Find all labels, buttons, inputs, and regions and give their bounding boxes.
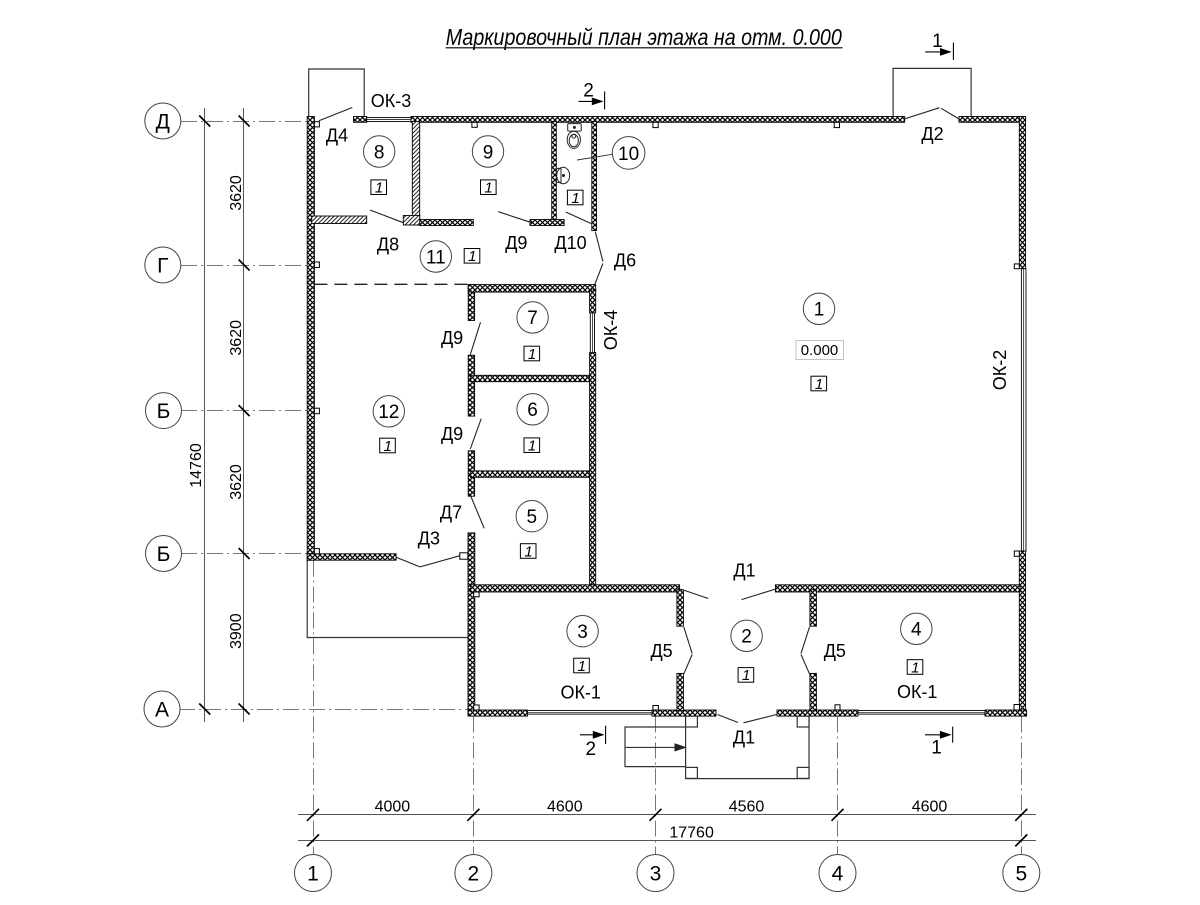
svg-text:Д3: Д3 <box>418 529 440 549</box>
svg-text:3: 3 <box>577 622 588 643</box>
svg-text:ОК-1: ОК-1 <box>560 683 601 703</box>
svg-text:1: 1 <box>931 738 942 759</box>
svg-text:1: 1 <box>932 31 943 52</box>
svg-text:1: 1 <box>815 376 823 393</box>
svg-text:4000: 4000 <box>375 799 411 816</box>
svg-text:ОК-1: ОК-1 <box>897 682 938 702</box>
svg-text:Д10: Д10 <box>554 233 586 253</box>
svg-text:6: 6 <box>527 400 538 421</box>
svg-text:Д9: Д9 <box>441 328 463 348</box>
svg-text:5: 5 <box>1015 863 1027 886</box>
svg-text:1: 1 <box>384 438 392 455</box>
svg-text:1: 1 <box>524 543 532 560</box>
svg-text:А: А <box>155 699 169 722</box>
svg-text:3620: 3620 <box>228 175 245 211</box>
svg-text:3: 3 <box>650 863 662 886</box>
svg-text:Д2: Д2 <box>921 124 943 144</box>
svg-text:Д4: Д4 <box>326 126 348 146</box>
svg-text:2: 2 <box>586 739 597 760</box>
svg-text:Д1: Д1 <box>733 728 755 748</box>
svg-text:12: 12 <box>378 402 399 423</box>
svg-text:Д9: Д9 <box>505 233 527 253</box>
svg-text:Д1: Д1 <box>733 561 755 581</box>
svg-text:1: 1 <box>468 248 476 265</box>
svg-text:11: 11 <box>426 247 446 268</box>
svg-text:Д6: Д6 <box>614 251 636 271</box>
svg-text:ОК-4: ОК-4 <box>601 310 621 351</box>
svg-text:3900: 3900 <box>228 613 245 649</box>
svg-text:7: 7 <box>527 308 538 329</box>
svg-text:5: 5 <box>527 507 538 528</box>
svg-text:14760: 14760 <box>188 443 205 488</box>
svg-text:4: 4 <box>832 863 844 886</box>
svg-text:1: 1 <box>814 300 825 321</box>
svg-text:1: 1 <box>307 863 319 886</box>
svg-text:Д5: Д5 <box>650 641 672 661</box>
svg-text:Д9: Д9 <box>441 424 463 444</box>
svg-text:10: 10 <box>618 144 639 165</box>
svg-text:17760: 17760 <box>669 825 714 842</box>
svg-text:3620: 3620 <box>228 464 245 500</box>
svg-text:8: 8 <box>374 142 385 163</box>
svg-text:Д8: Д8 <box>377 235 399 255</box>
svg-text:Д5: Д5 <box>824 641 846 661</box>
svg-text:3620: 3620 <box>228 320 245 356</box>
svg-text:1: 1 <box>742 667 750 684</box>
svg-text:1: 1 <box>528 346 536 363</box>
svg-text:ОК-2: ОК-2 <box>990 350 1010 391</box>
svg-text:4600: 4600 <box>547 799 583 816</box>
svg-text:4: 4 <box>911 620 922 641</box>
svg-text:1: 1 <box>484 180 492 197</box>
svg-text:Маркировочный план этажа на от: Маркировочный план этажа на отм. 0.000 <box>446 24 842 50</box>
svg-text:1: 1 <box>911 659 919 676</box>
svg-text:Д7: Д7 <box>440 503 462 523</box>
svg-text:2: 2 <box>468 863 480 886</box>
svg-text:0.000: 0.000 <box>801 342 839 359</box>
svg-text:Б: Б <box>157 543 171 566</box>
svg-text:1: 1 <box>375 180 383 197</box>
svg-text:Г: Г <box>157 255 168 278</box>
svg-text:2: 2 <box>583 81 594 102</box>
svg-text:1: 1 <box>578 658 586 675</box>
svg-text:Б: Б <box>157 400 171 423</box>
svg-text:9: 9 <box>483 142 494 163</box>
svg-text:ОК-3: ОК-3 <box>371 91 412 111</box>
svg-text:2: 2 <box>741 627 752 648</box>
svg-text:4560: 4560 <box>729 799 765 816</box>
svg-text:Д: Д <box>156 111 170 134</box>
svg-text:1: 1 <box>571 190 579 207</box>
svg-text:1: 1 <box>528 438 536 455</box>
svg-text:4600: 4600 <box>912 799 948 816</box>
